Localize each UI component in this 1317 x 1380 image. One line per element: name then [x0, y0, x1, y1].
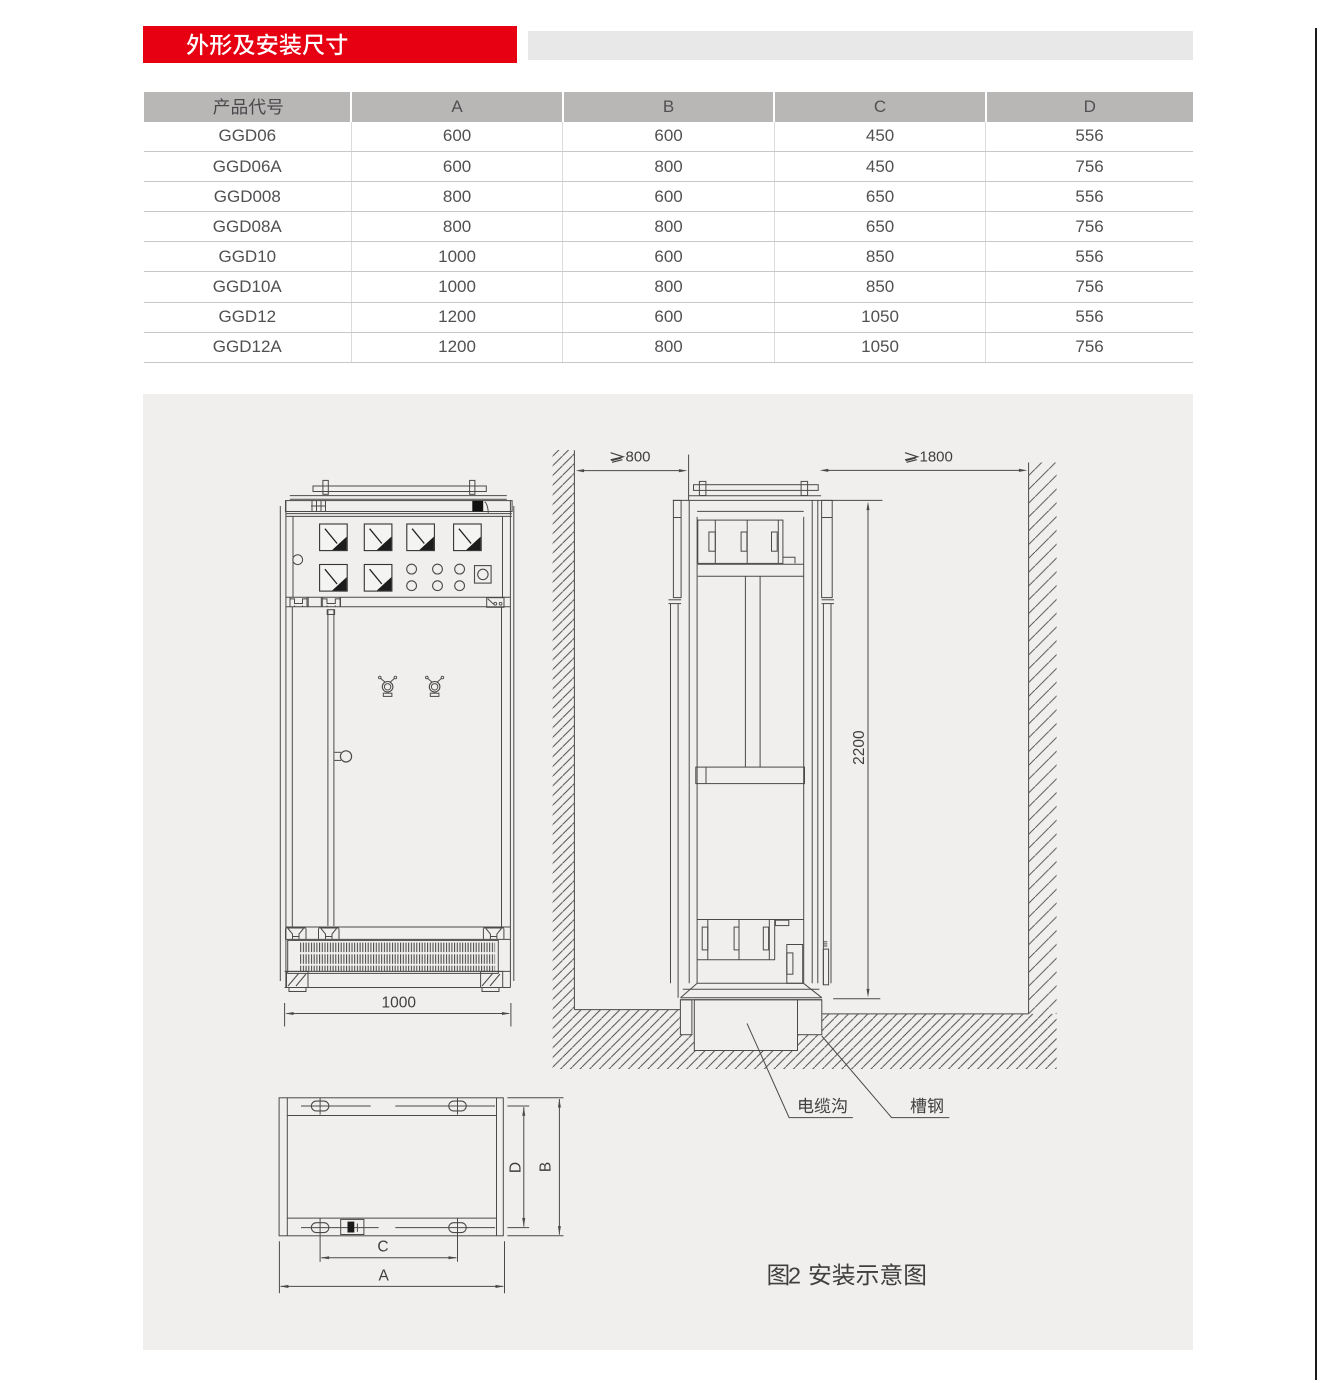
svg-text:C: C [377, 1238, 388, 1255]
svg-text:2200: 2200 [851, 730, 868, 765]
svg-text:A: A [379, 1267, 390, 1284]
svg-text:D: D [507, 1162, 524, 1173]
svg-text:2: 2 [788, 1263, 801, 1289]
svg-text:1000: 1000 [382, 995, 417, 1012]
svg-text:1800: 1800 [920, 449, 953, 466]
svg-text:B: B [537, 1162, 554, 1172]
svg-text:800: 800 [626, 449, 651, 466]
